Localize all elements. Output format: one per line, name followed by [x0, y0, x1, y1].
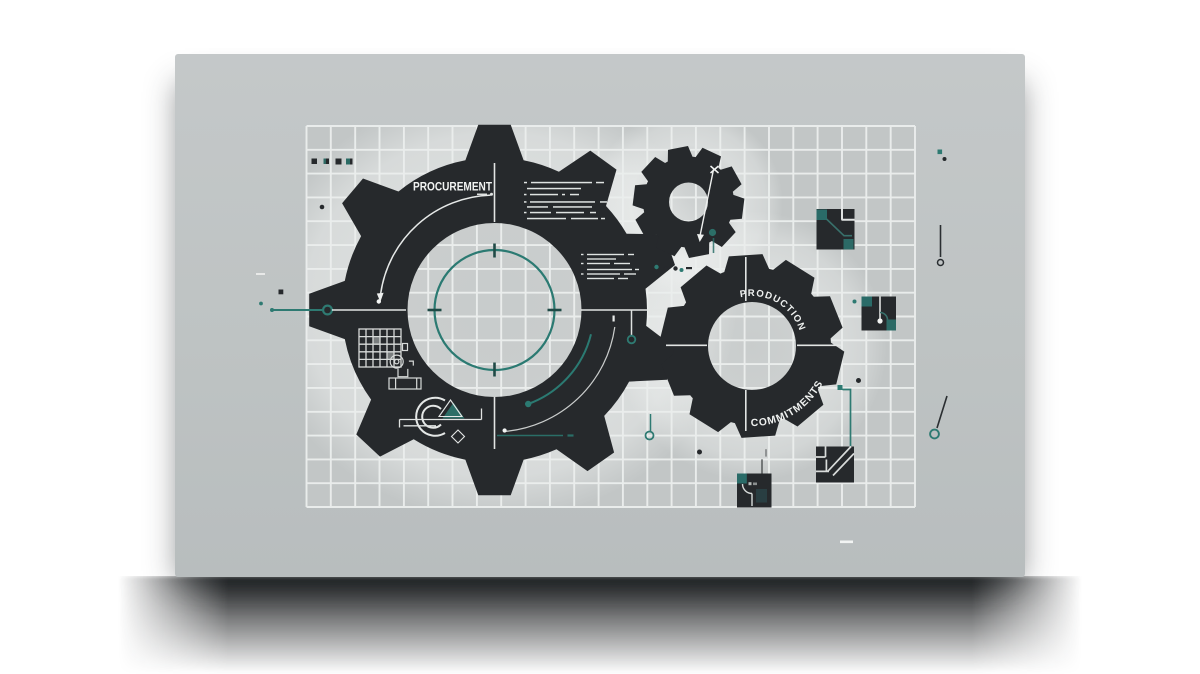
svg-text:PROCUREMENT: PROCUREMENT	[413, 180, 493, 194]
